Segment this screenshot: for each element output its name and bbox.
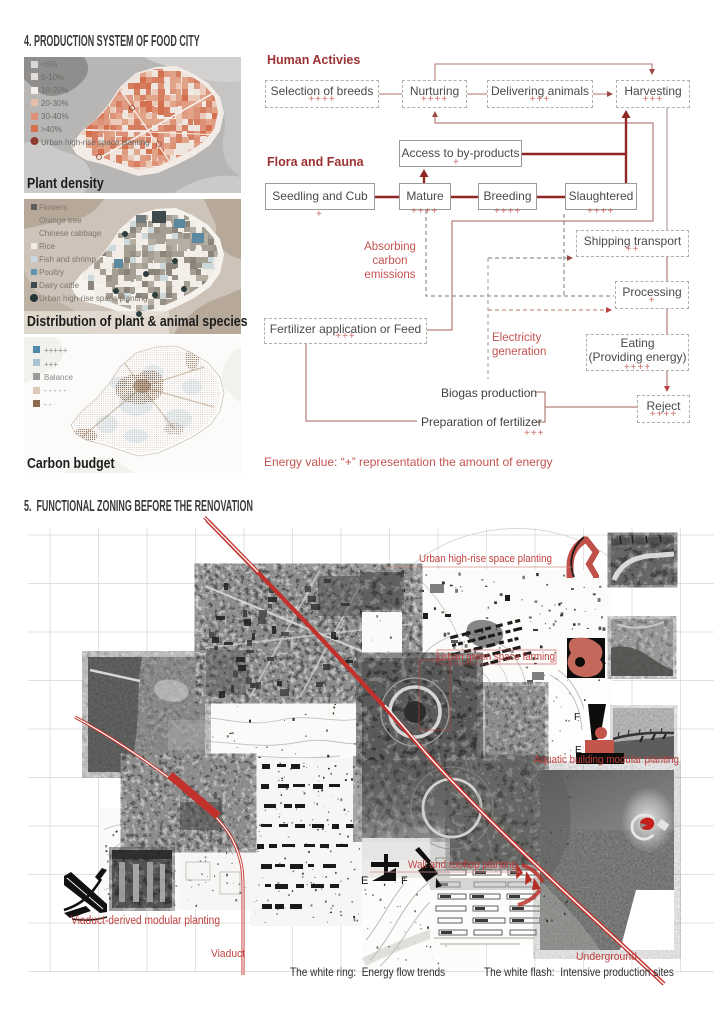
svg-text:Underground: Underground [576,951,637,963]
svg-text:F: F [401,875,408,887]
svg-text:Aquatic building modular plant: Aquatic building modular planting [534,754,679,766]
svg-text:F: F [574,712,580,723]
svg-text:Urban green space farming: Urban green space farming [437,651,555,663]
svg-text:E: E [361,875,368,887]
svg-text:Viaduct: Viaduct [211,948,245,960]
svg-text:Viaduct-derived modular planti: Viaduct-derived modular planting [71,915,220,927]
svg-text:Urban high-rise space planting: Urban high-rise space planting [419,553,552,565]
svg-text:Wall and rooftop planting: Wall and rooftop planting [408,859,517,871]
